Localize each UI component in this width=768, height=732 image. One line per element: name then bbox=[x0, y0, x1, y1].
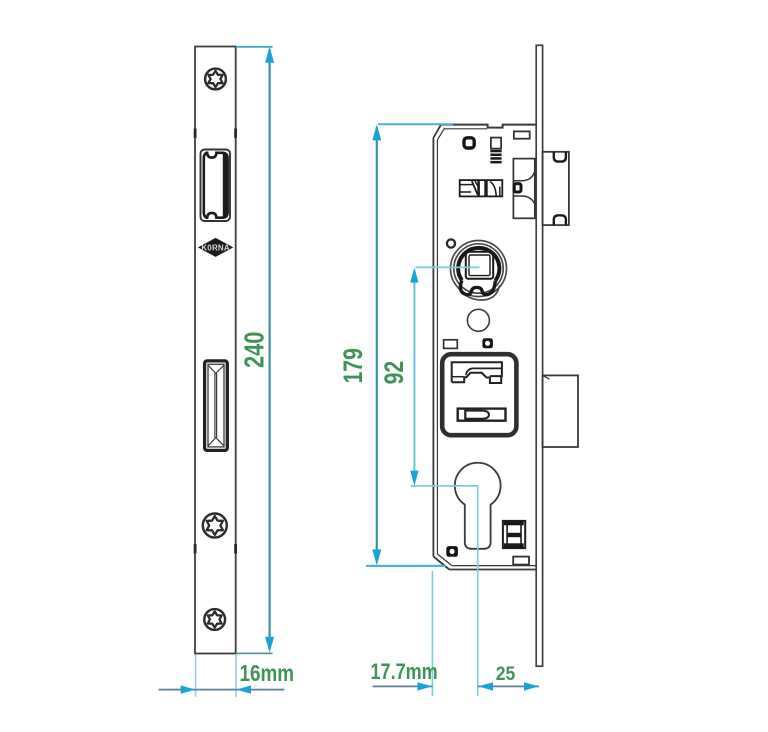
svg-text:25: 25 bbox=[496, 662, 516, 684]
svg-text:17.7mm: 17.7mm bbox=[371, 660, 438, 684]
svg-text:K0RNA: K0RNA bbox=[201, 244, 230, 253]
svg-text:179: 179 bbox=[339, 348, 369, 383]
svg-text:16mm: 16mm bbox=[240, 661, 294, 686]
svg-text:92: 92 bbox=[380, 361, 410, 385]
svg-text:240: 240 bbox=[239, 332, 270, 368]
